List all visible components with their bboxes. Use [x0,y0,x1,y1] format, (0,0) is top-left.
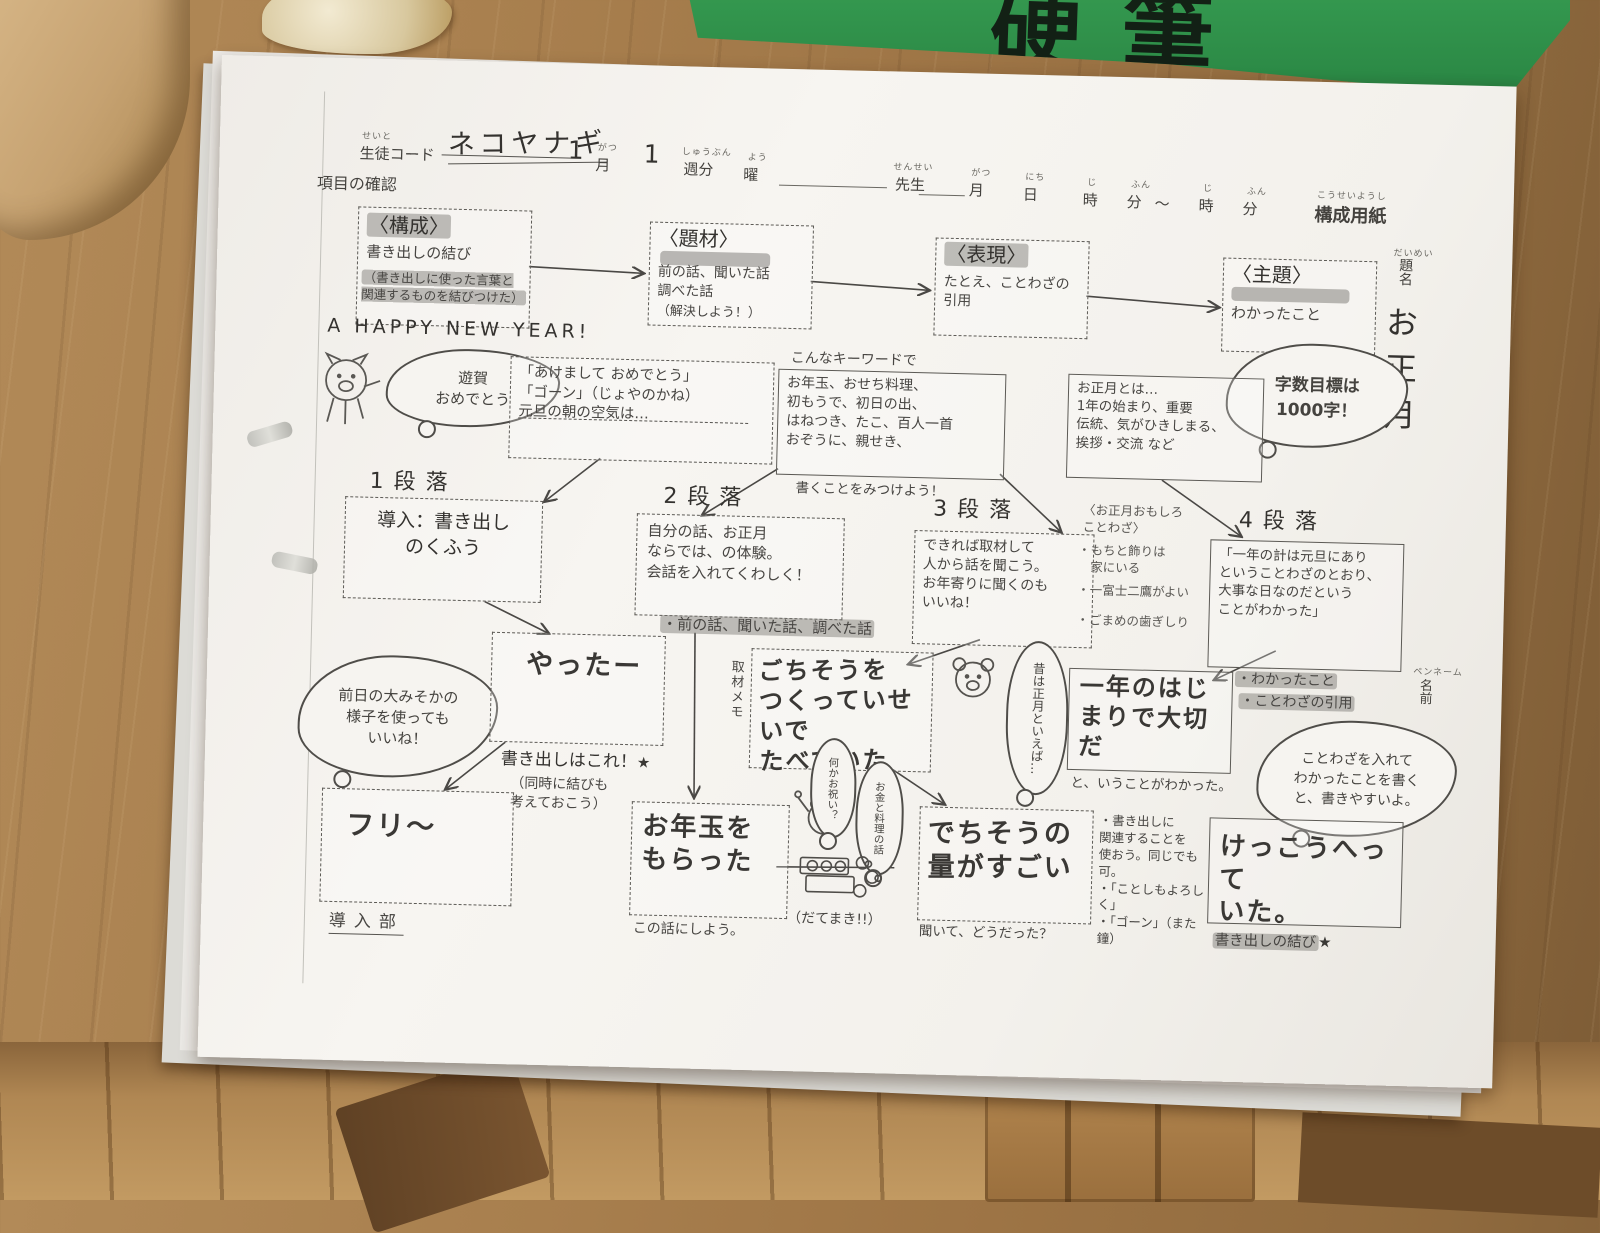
kousei-title: 〈構成〉 [367,213,452,239]
daizai-title: 〈題材〉 [658,225,739,254]
yatta-note1: 書き出しはこれ！★ [501,748,651,775]
hint-text: 前日の大みそかの 様子を使っても いいね！ [337,684,459,750]
day-label: 曜 [743,164,759,185]
happy-new-year-text: A HAPPY NEW YEAR! [327,314,590,346]
date-day: 日 [1023,184,1039,205]
date-min: 分 [1126,191,1142,212]
handwritten-number: 1 [643,137,660,171]
greeting-text: 「あけまして おめでとう」 「ゴーン」（じょやのかね） 元旦の朝の空気は… [518,363,700,426]
highlight-smear [1231,287,1349,304]
shudai-title: 〈主題〉 [1232,261,1313,290]
oshogatsu-text: お正月とは… 1年の始まり、重要 伝統、気がひきしまる、 挨拶・交流 など [1076,379,1226,455]
ryou-text: でちそうの 量がすごい [928,817,1073,886]
crumpled-paper [262,0,452,54]
furigana: ふん [1131,177,1151,190]
sources-line: ・前の話、聞いた話、調べた話 [660,615,874,638]
pig-drawing [305,345,391,427]
shudai-box: 〈主題〉 わかったこと [1221,258,1377,356]
furigana: じ [1087,175,1097,188]
oshogatsu-box: お正月とは… 1年の始まり、重要 伝統、気がひきしまる、 挨拶・交流 など [1066,374,1264,483]
penname-label: 名前 [1414,678,1434,704]
underline [919,194,965,196]
yatta-text: やったー [526,648,643,685]
paragraph3-box: できれば取材して 人から話を聞こう。 お年寄りに聞くのも いいね！ [912,530,1095,648]
star-mark: ★ [637,753,651,771]
bear-drawing [942,647,1003,706]
tilde: 〜 [1154,193,1170,214]
hyougen-box: 〈表現〉 たとえ、ことわざの 引用 [933,237,1089,339]
mukashi-text: 昔は正月といえば… [1026,662,1048,775]
shudai-line1: わかったこと [1231,303,1321,325]
otoshidama-text: お年玉を もらった [641,811,755,879]
checked-point1: ・わかったこと [1235,671,1337,689]
tape-mark [270,551,318,576]
paragraph2-body: 自分の話、お正月 ならでは、の体験。 会話を入れてくわしく！ [646,521,812,586]
date-min2: 分 [1242,198,1258,219]
memo-label: 取材メモ [726,660,745,720]
datemaki-label: （だてまき!!） [787,909,882,930]
keyword-items: お年玉、おせち料理、 初もうで、初日の出、 はねつき、たこ、百人一首 おぞうに、… [786,374,955,454]
wooden-object [0,0,190,240]
hyougen-line1: たとえ、ことわざの 引用 [943,273,1070,314]
furigana: じ [1203,181,1213,194]
kekkou-text: けっこうへって いた。 [1218,831,1402,933]
ichinen-text: 一年のはじ まりで大切 だ [1078,671,1210,764]
kono-hanashi-note: この話にしよう。 [633,919,745,941]
pig-bubble-text: 遊賀 おめでとう [435,366,511,410]
date-month: 月 [969,179,985,200]
week-label: 週分 [683,158,714,180]
paragraph3-label: 3段落 [933,495,1022,527]
otoshidama-box: お年玉を もらった [629,801,790,919]
furigana: せいと [362,128,392,142]
kotowaza-item3: ・ごまめの歯ぎしり [1076,612,1189,632]
ichinen-box: 一年のはじ まりで大切 だ [1067,668,1233,774]
mukashi-bubble: 昔は正月といえば… [1004,640,1070,795]
student-code-label: 生徒コード [359,142,435,165]
advice-text: ことわざを入れて わかったことを書く と、書きやすいよ。 [1293,747,1420,810]
tape-mark [245,420,294,448]
paragraph4-label: 4段落 [1239,506,1328,538]
furigana: がつ [971,165,991,178]
desk-leg [1298,1112,1600,1218]
checked-point2: ・ことわざの引用 [1238,693,1354,712]
underline [779,185,887,189]
date-hour: 時 [1082,189,1098,210]
frog-bubble1-text: 何かお祝い？ [825,756,842,819]
kotowaza-item2: ・一富士二鷹がよい [1077,582,1189,602]
date-hour2: 時 [1198,195,1214,216]
kakidashi-musubi-note: 書き出しの結び★ [1212,929,1331,953]
kotowaza-title: 〈お正月おもしろ ことわざ〉 [1083,502,1184,538]
furigana: せんせい [893,159,933,173]
month-label: 月 [595,154,611,175]
goal-text: 字数目標は 1000字！ [1274,370,1360,422]
composition-worksheet: せいと 生徒コード ネコヤナギ 1 がつ 月 1 しゅうぶん 週分 よう 曜 せ… [198,55,1517,1088]
osechi-food-drawing [791,849,884,909]
frog-bubble2-text: お金と料理の話 [871,781,888,855]
kousei-line1: 書き出しの結び [366,242,471,265]
furi-text: フリ〜 [346,807,437,844]
daizai-line2: （解決しよう！） [657,303,761,323]
title-label: 題名 [1395,258,1416,286]
photo-of-worksheet-on-desk: { "scene":{"green_folder_text":"硬筆"}, "h… [0,0,1600,1200]
furi-box: フリ〜 [319,788,514,907]
kotowaza-item1: ・もちと飾りは 家にいる [1078,542,1166,578]
ichinen-note: と、いうことがわかった。 [1070,774,1232,796]
furigana: ペンネーム [1413,664,1463,678]
furigana: しゅうぶん [682,144,732,158]
greeting-box: 「あけまして おめでとう」 「ゴーン」（じょやのかね） 元旦の朝の空気は… [508,356,774,464]
daizai-box: 〈題材〉 前の話、聞いた話 調べた話 （解決しよう！） [648,222,814,330]
furigana: がつ [598,140,618,153]
paragraph1-box: 導入：書き出し のくふう [343,496,543,603]
paragraph1-body: 導入：書き出し のくふう [359,508,528,563]
hyougen-title: 〈表現〉 [944,242,1029,268]
keyword-box: お年玉、おせち料理、 初もうで、初日の出、 はねつき、たこ、百人一首 おぞうに、… [776,369,1007,481]
paragraph1-label: 1段落 [369,467,458,499]
dounyubu-label: 導入部 [329,910,405,936]
keyword-footer: 書くことをみつけよう！ [795,479,944,501]
kousei-line2: （書き出しに使った言葉と 関連するものを結びつけた） [361,269,526,305]
paragraph2-box: 自分の話、お正月 ならでは、の体験。 会話を入れてくわしく！ [634,513,844,620]
ryou-box: でちそうの 量がすごい [917,806,1094,924]
keyword-title: こんなキーワードで [791,349,917,371]
handwritten-number: 1 [567,133,584,167]
yatta-box: やったー [489,632,666,746]
right-notes: ・書き出しに 関連することを 使おう。同じでも可。 ・「ことしもよろしく」 ・「… [1096,813,1217,951]
sheet-title: 構成用紙 [1314,201,1387,229]
kousei-box: 〈構成〉 書き出しの結び （書き出しに使った言葉と 関連するものを結びつけた） [355,206,532,328]
teacher-label: 先生 [895,173,926,195]
paragraph4-box: 「一年の計は元旦にあり ということわざのとおり、 大事な日なのだという ことがわ… [1207,539,1404,672]
furigana: ふん [1247,184,1267,197]
paragraph4-body: 「一年の計は元旦にあり ということわざのとおり、 大事な日なのだという ことがわ… [1218,546,1381,623]
furigana: にち [1025,170,1045,183]
furigana: よう [748,150,768,163]
kiite-note: 聞いて、どうだった？ [919,922,1053,943]
star-mark: ★ [1318,933,1332,951]
kekkou-box: けっこうへって いた。 [1207,817,1404,928]
daizai-line1: 前の話、聞いた話 調べた話 [657,263,770,304]
paragraph2-label: 2段落 [663,482,752,514]
hint-cloud: 前日の大みそかの 様子を使っても いいね！ [296,653,499,780]
paragraph3-body: できれば取材して 人から話を聞こう。 お年寄りに聞くのも いいね！ [922,536,1050,615]
section-label: 項目の確認 [317,169,398,195]
yatta-note2: （同時に結びも 考えておこう） [510,774,609,814]
